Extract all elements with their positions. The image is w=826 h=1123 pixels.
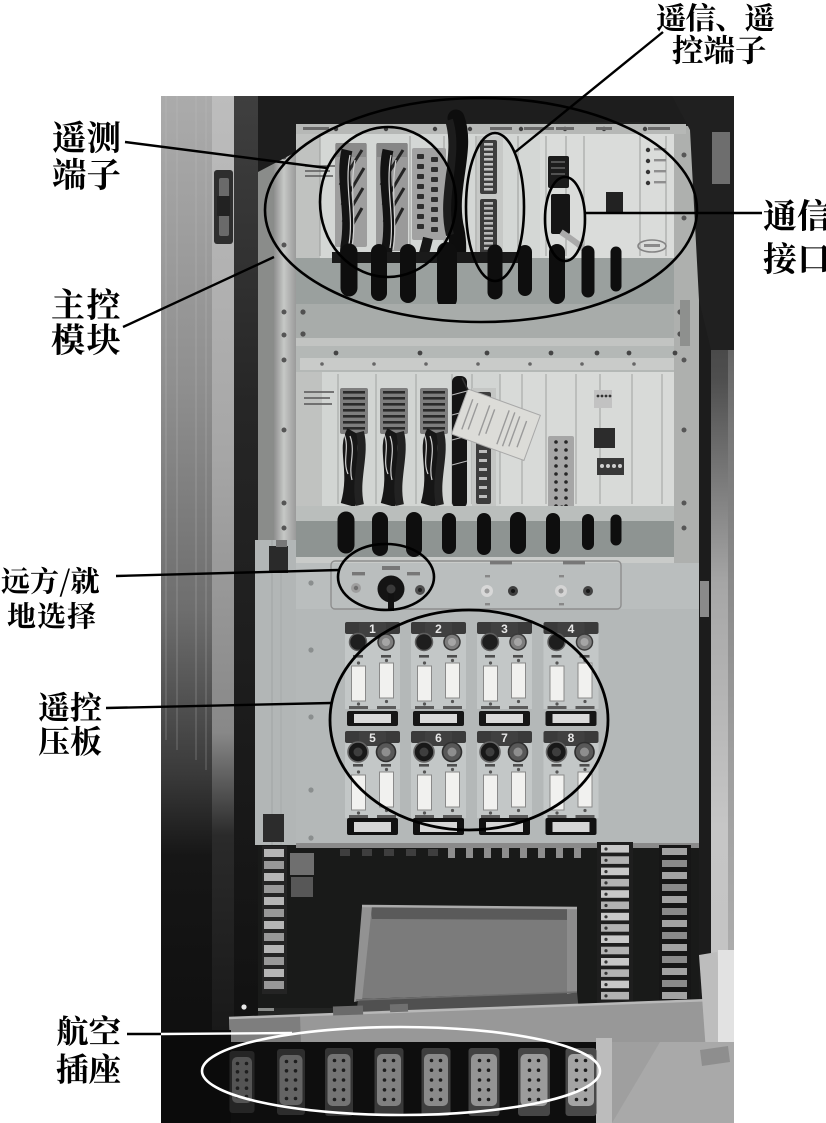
- svg-text:7: 7: [501, 731, 508, 745]
- svg-text:1: 1: [369, 622, 376, 636]
- svg-text:8: 8: [568, 731, 575, 745]
- svg-text:6: 6: [435, 731, 442, 745]
- svg-text:4: 4: [568, 622, 575, 636]
- svg-text:2: 2: [435, 622, 442, 636]
- svg-text:3: 3: [501, 622, 508, 636]
- svg-text:5: 5: [369, 731, 376, 745]
